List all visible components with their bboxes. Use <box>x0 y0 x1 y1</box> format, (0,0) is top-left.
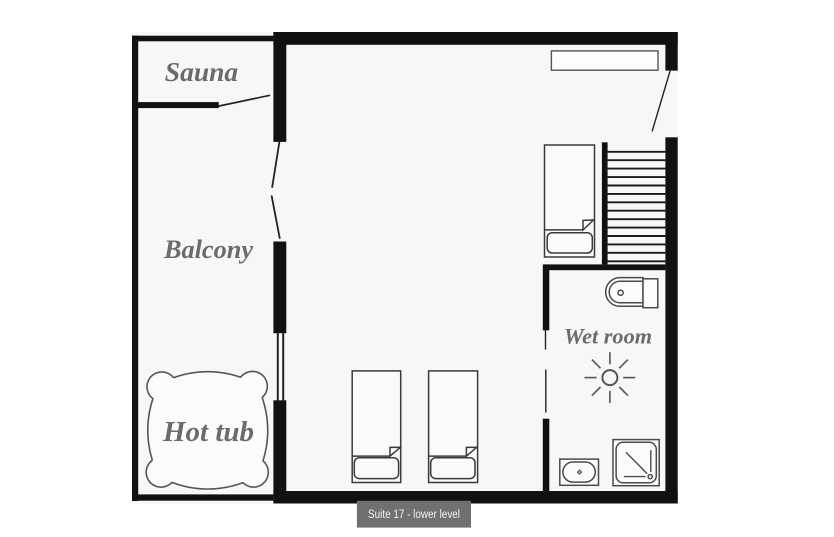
svg-text:Sauna: Sauna <box>165 56 239 87</box>
svg-text:Balcony: Balcony <box>163 235 253 264</box>
svg-text:Suite 17 - lower level: Suite 17 - lower level <box>368 507 460 521</box>
svg-text:Wet room: Wet room <box>564 324 652 349</box>
svg-text:Hot tub: Hot tub <box>162 416 254 448</box>
